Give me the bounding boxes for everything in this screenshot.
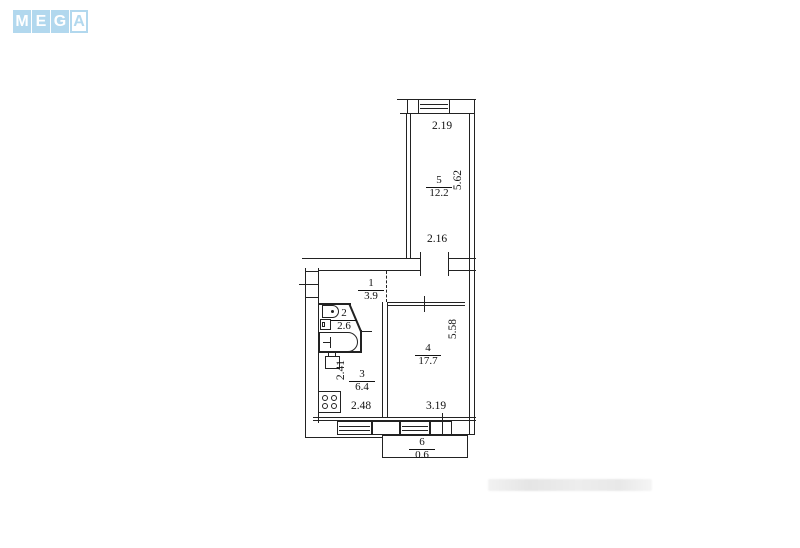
wall-section-upper [302,258,476,259]
dimension-kitchen-height: 2.41 [335,350,347,390]
logo-tile-a: A [70,10,88,33]
dimension-room4-width: 3.19 [416,400,456,412]
room4-label: 4 17.7 [408,343,448,368]
room6-label: 6 0.6 [402,437,442,462]
room2-number: 2 [331,308,357,321]
wall-bottom-inner [313,417,476,418]
wall-room4-top [387,302,465,303]
stove-burner [322,403,328,409]
door-opening-balcony [430,421,452,435]
watermark [488,479,652,491]
room6-area: 0.6 [402,450,442,462]
room3-label: 3 6.4 [342,369,382,394]
window-room4 [400,421,430,435]
wall-section-lower [318,270,476,271]
room6-number: 6 [409,437,435,450]
room1-number: 1 [358,278,384,291]
window-glazing-line [420,104,448,105]
stove-burner [331,403,337,409]
room2-label: 2 2.6 [324,308,364,333]
window-glazing-line [402,426,428,427]
dimension-room4-height: 5.58 [447,309,459,349]
room3-area: 6.4 [342,382,382,394]
room4-area: 17.7 [408,356,448,368]
balcony-door [372,421,400,435]
window-left-glazing [305,297,318,298]
stove-burner [331,395,337,401]
door-jamb-tick [424,296,425,312]
room3-number: 3 [349,369,375,382]
wall-bottom-outer [305,437,382,438]
window-glazing-line [339,426,370,427]
wall-bathroom-right [360,330,362,353]
door-jamb-tick [448,252,449,276]
logo-tile-e: E [32,10,50,33]
room4-number: 4 [415,343,441,356]
logo-tile-m: M [13,10,31,33]
room1-area: 3.9 [351,291,391,303]
wall-kitchen-room4 [387,302,388,417]
wall-stub [474,99,475,113]
stove-icon [318,391,341,413]
dimension-room5-bottom: 2.16 [417,233,457,245]
wall-right-outer [469,113,470,434]
window-glazing-line [402,430,428,431]
window-glazing-line [420,108,448,109]
window-kitchen [337,421,372,435]
logo-tile-g: G [51,10,69,33]
wall-stub [407,99,408,113]
window-room5-top [418,99,450,114]
wall-room5-left [410,113,411,259]
bathtub-tap [330,337,331,348]
mega-logo: M E G A [13,10,88,33]
room2-area: 2.6 [324,321,364,333]
wall-room4-top [387,305,465,306]
wall-right-outer [474,113,475,434]
door-opening-room5 [420,256,448,273]
window-left-glazing [305,284,318,285]
wall-kitchen-room4 [382,302,383,417]
bathtub-icon [319,332,358,352]
room5-number: 5 [426,175,452,188]
door-jamb-tick [420,252,421,276]
window-glazing-line [339,430,370,431]
room1-label: 1 3.9 [351,278,391,303]
dimension-tick [299,284,305,285]
dimension-kitchen-width: 2.48 [341,400,381,412]
dimension-room5-height: 5.62 [452,160,464,200]
wall-room5-left [406,113,407,259]
stove-burner [322,395,328,401]
bathtub-tap [323,342,330,343]
wall-left-outer [305,268,306,437]
dimension-room5-width: 2.19 [422,120,462,132]
window-left-glazing [305,271,318,272]
